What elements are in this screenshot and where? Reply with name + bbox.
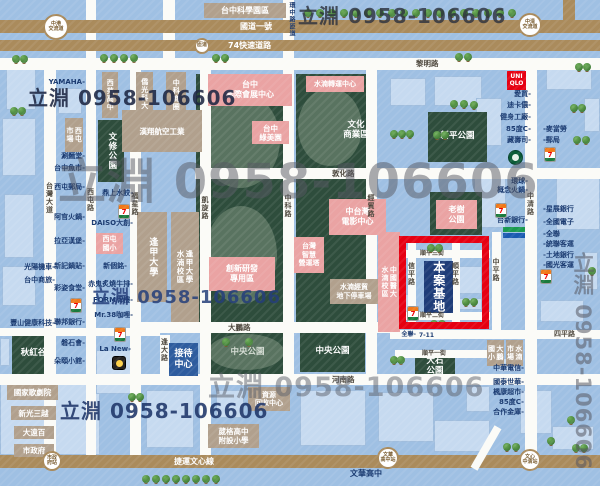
tree-icon: [503, 443, 511, 451]
poi-label: 阿官火鍋-: [54, 214, 85, 221]
poi-label: DAISO大創-: [91, 220, 133, 227]
station-badge: 文華 高中站: [377, 447, 399, 469]
poi-label: 光陽機車-: [24, 264, 55, 271]
poi-label: Mr.38咖哩-: [94, 312, 133, 319]
poi-label: 朵頤小館-: [54, 358, 85, 365]
road-label: 黎明路: [416, 60, 439, 68]
tree-icon: [12, 55, 20, 63]
road: [130, 322, 392, 333]
seven-eleven-icon: 7: [70, 298, 82, 313]
seven-eleven-icon: 7: [114, 327, 126, 342]
poi-label: YAMAHA-: [49, 79, 85, 86]
road: [0, 58, 600, 70]
tree-icon: [192, 475, 200, 483]
poi-label: 迪卡儂-: [507, 102, 531, 109]
tree-icon: [110, 54, 118, 62]
poi-label: 文華高中: [350, 470, 382, 478]
poi-label: -全國電子: [543, 219, 574, 226]
road-label: 國道一號: [240, 23, 272, 31]
tree-icon: [441, 131, 449, 139]
tree-icon: [130, 54, 138, 62]
watermark-text: 立淵 0958-106606: [60, 401, 268, 421]
tree-icon: [470, 101, 478, 109]
tree-icon: [582, 136, 590, 144]
poi-label: 愛買-: [514, 91, 531, 98]
poi-label: La New-: [99, 346, 131, 353]
watermark-text: 立淵 0958-106606: [572, 252, 593, 470]
poi-box: 西屯 市場: [65, 118, 83, 152]
poi-box: 漢翔航空工業: [122, 110, 202, 152]
poi-box: 中國醫大 水湳校區: [378, 232, 400, 332]
poi-label: -統聯客運: [543, 241, 574, 248]
poi-label: -全聯: [543, 231, 560, 238]
poi-label: 藏壽司-: [507, 137, 531, 144]
poi-box: 葳格高中 附設小學: [208, 424, 259, 448]
building-block: [584, 98, 600, 132]
tree-icon: [512, 443, 520, 451]
poi-box: 水湳轉運中心: [306, 76, 364, 92]
station-badge: 中清 交流道: [518, 13, 542, 37]
poi-label: 台新銀行-: [497, 217, 528, 224]
tree-icon: [570, 104, 578, 112]
tree-icon: [455, 53, 463, 61]
tree-icon: [460, 100, 468, 108]
watermark-text: 立淵 0958-106606: [92, 289, 281, 307]
road: [0, 328, 160, 336]
poi-box: 水湳 市場: [506, 340, 523, 366]
tree-icon: [100, 54, 108, 62]
poi-box: 國家歌劇院: [7, 385, 58, 400]
tree-icon: [152, 475, 160, 483]
poi-box: 台中 綠美園: [252, 121, 289, 144]
tree-icon: [573, 136, 581, 144]
brand-badge-icon: [112, 356, 126, 370]
watermark-text: 立淵 0958-106606: [58, 158, 539, 206]
station-badge: 文心 中清站: [519, 449, 541, 471]
tree-icon: [142, 475, 150, 483]
poi-label: 楓康超市-: [493, 389, 524, 396]
poi-label: 台中商旅-: [24, 277, 55, 284]
watermark-text: 立淵 0958-106606: [298, 6, 506, 26]
building-block: [4, 194, 34, 258]
road: [563, 0, 575, 20]
poi-box: 新光三越: [11, 406, 56, 420]
poi-box: 文化 商業區: [330, 117, 382, 143]
building-block: [2, 266, 36, 306]
tree-icon: [406, 130, 414, 138]
tree-icon: [397, 356, 405, 364]
tree-icon: [508, 9, 516, 17]
poi-box: UNI QLO: [507, 71, 526, 90]
taishin-bank-icon: [503, 227, 525, 238]
tree-icon: [390, 130, 398, 138]
tree-icon: [578, 104, 586, 112]
poi-label: 中華電信-: [493, 365, 524, 372]
tree-icon: [398, 130, 406, 138]
tree-icon: [172, 475, 180, 483]
tree-icon: [547, 437, 555, 445]
road-label: 捷運文心線: [174, 458, 214, 466]
poi-label: 健身工廠-: [500, 114, 531, 121]
tree-icon: [182, 475, 190, 483]
poi-label: 磐石會-: [61, 340, 85, 347]
poi-box: 西屯 國小: [96, 233, 123, 254]
road: [0, 40, 600, 51]
station-badge: 匝道: [194, 38, 210, 54]
road-label: 大鵬路: [228, 324, 251, 332]
tree-icon: [583, 63, 591, 71]
shuinan-area-map: 新平公園中央公園中央公園大石 公園秋紅谷文修公園台灣大道西屯路福星路凱旋路中科路…: [0, 0, 600, 486]
site-highlight-rect: [399, 236, 489, 329]
poi-label: 全聯-: [402, 332, 417, 338]
tree-icon: [212, 54, 220, 62]
poi-box: 台灣 智慧 營運塔: [294, 237, 324, 273]
poi-box: 台中科學園區: [204, 3, 286, 18]
poi-label: -郵局: [543, 137, 560, 144]
poi-label: -麥當勞: [543, 126, 567, 133]
poi-box: 接待 中心: [169, 343, 198, 376]
poi-label: 85度C-: [506, 126, 531, 133]
tree-icon: [221, 54, 229, 62]
poi-box: 水湳經貿 地下停車場: [330, 279, 378, 304]
poi-label: 國泰世華-: [493, 379, 524, 386]
poi-label: 新記鍋貼-: [54, 263, 85, 270]
poi-label: -土地銀行: [543, 252, 574, 259]
tree-icon: [120, 54, 128, 62]
poi-box: 大遠百: [14, 426, 54, 439]
poi-label: 7-11: [419, 333, 434, 339]
tree-icon: [10, 107, 18, 115]
road-label: 逢大路: [161, 338, 168, 362]
seven-eleven-icon: 7: [544, 147, 556, 162]
watermark-text: 立淵 0958-106606: [28, 88, 236, 108]
poi-label: 新個銘-: [103, 263, 127, 270]
tree-icon: [575, 63, 583, 71]
park-area: 中央公園: [300, 332, 365, 372]
poi-label: 聯邦銀行-: [54, 319, 85, 326]
poi-label: 彩姿食堂-: [54, 285, 85, 292]
building-block: [2, 118, 36, 176]
road-label: 順平一街: [422, 351, 446, 357]
tree-icon: [162, 475, 170, 483]
poi-label: 環中路匝道: [288, 2, 294, 37]
tree-icon: [212, 475, 220, 483]
tree-icon: [433, 131, 441, 139]
building-block: [0, 338, 10, 366]
station-badge: 市政 府站: [42, 451, 62, 471]
poi-label: 豐山健康科技-: [10, 320, 55, 327]
poi-box: 創新研發 專用區: [209, 257, 275, 291]
tree-icon: [18, 107, 26, 115]
watermark-text: 立淵 0958-106606: [208, 374, 484, 401]
tree-icon: [20, 55, 28, 63]
poi-box: 大鵬 國小: [487, 340, 504, 366]
poi-label: -星展銀行: [543, 206, 574, 213]
station-badge: 中港 交流道: [43, 14, 69, 40]
poi-label: 85度C-: [499, 399, 524, 406]
poi-label: 合作金庫-: [493, 409, 524, 416]
poi-label: -國光客運: [543, 262, 574, 269]
tree-icon: [245, 338, 253, 346]
road-label: 中平路: [492, 258, 499, 282]
poi-label: 拉亞漢堡-: [54, 238, 85, 245]
road: [0, 455, 600, 468]
tree-icon: [222, 338, 230, 346]
seven-eleven-icon: 7: [540, 269, 552, 284]
road-label: 台灣大道: [46, 182, 53, 214]
tree-icon: [450, 100, 458, 108]
tree-icon: [464, 53, 472, 61]
tree-icon: [202, 475, 210, 483]
road-label: 74快速道路: [228, 42, 271, 50]
building-block: [390, 78, 426, 106]
